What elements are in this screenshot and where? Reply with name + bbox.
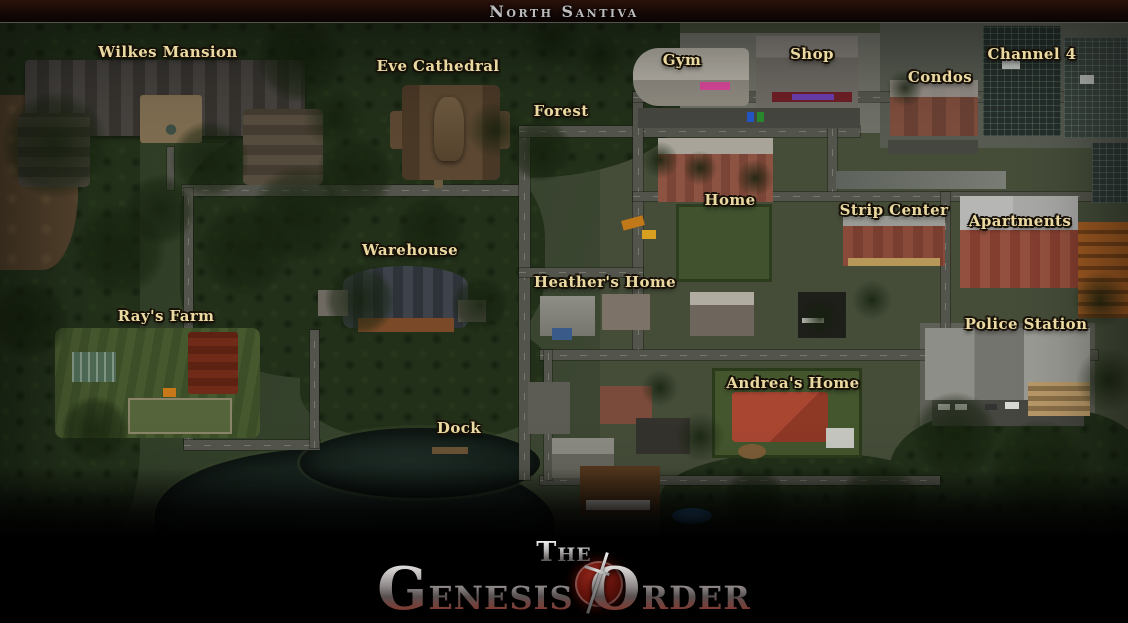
the-genesis-order-logo: The Genesis Order [377,539,751,619]
condos-building [890,80,978,136]
map-canvas: Wilkes Mansion Eve Cathedral Forest Gym … [0,23,1128,538]
home-yard [676,204,772,282]
map-label-police-station[interactable]: Police Station [965,315,1088,333]
map-label-shop[interactable]: Shop [790,45,834,63]
channel4-tower [1092,143,1128,203]
logo-main-line: Genesis Order [377,566,751,620]
greenhouse [72,352,116,382]
mansion-wing [18,113,90,187]
sand-patch [738,444,766,459]
shop-sign [792,94,834,100]
warehouse-shed [458,300,486,322]
deck [586,500,650,510]
warehouse-front [358,318,454,332]
road [184,440,320,450]
police-station-wing [1028,382,1090,416]
office-building [1078,222,1128,318]
house [528,382,570,434]
map-label-eve-cathedral[interactable]: Eve Cathedral [377,57,500,75]
rays-farm-barn [188,332,238,394]
strip-center-mall [836,171,1006,189]
mansion-driveway [167,147,174,190]
tractor [163,388,176,397]
warehouse-shed [318,290,348,316]
garden-shed [552,328,572,340]
rooftop-unit [1080,75,1094,84]
cathedral-spire [434,97,464,161]
parked-car [955,404,967,410]
strip-center-awning [848,258,940,266]
house [636,418,690,454]
trash-bin [757,112,764,122]
forest-patch [660,453,950,538]
channel4-tower [983,26,1061,136]
dock-pier [432,447,468,454]
garage [826,428,854,448]
map-label-strip-center[interactable]: Strip Center [840,201,949,219]
map-title: North Santiva [489,2,639,21]
map-label-condos[interactable]: Condos [908,68,972,86]
forest-patch [300,320,550,440]
map-label-andreas-home[interactable]: Andrea's Home [726,374,859,392]
mansion-courtyard [140,95,202,143]
swimming-pool [672,508,712,524]
map-label-apartments[interactable]: Apartments [969,212,1071,230]
map-label-home[interactable]: Home [704,191,755,209]
gym-sign [700,82,730,90]
parked-car [938,404,950,410]
andreas-home-house [732,392,828,442]
road [310,330,319,448]
animal-pens [128,398,232,434]
dark-building [798,292,846,338]
map-label-dock[interactable]: Dock [437,419,481,437]
map-label-heathers-home[interactable]: Heather's Home [534,273,676,291]
map-label-channel-4[interactable]: Channel 4 [988,45,1077,63]
footer: The Genesis Order NLT-MEDIA.COM [0,538,1128,623]
parked-car [1005,402,1019,409]
lake [300,428,540,498]
map-label-forest[interactable]: Forest [533,102,588,120]
construction-digger [642,230,656,239]
mansion-wing [243,109,323,185]
trash-bin [747,112,754,122]
logo-word-order: Order [589,560,751,619]
building-sign [802,318,824,323]
game-map-screen: North Santiva [0,0,1128,623]
house [602,294,650,330]
map-label-wilkes-mansion[interactable]: Wilkes Mansion [98,43,237,61]
road [182,185,527,196]
map-label-warehouse[interactable]: Warehouse [362,241,458,259]
map-label-gym[interactable]: Gym [663,51,702,69]
map-label-rays-farm[interactable]: Ray's Farm [118,307,215,325]
map-title-bar: North Santiva [0,0,1128,23]
apartments-building [960,230,1078,288]
parking-lot [888,140,978,154]
house [690,292,754,336]
logo-word-genesis: Genesis [377,560,574,619]
parked-car [985,404,997,410]
